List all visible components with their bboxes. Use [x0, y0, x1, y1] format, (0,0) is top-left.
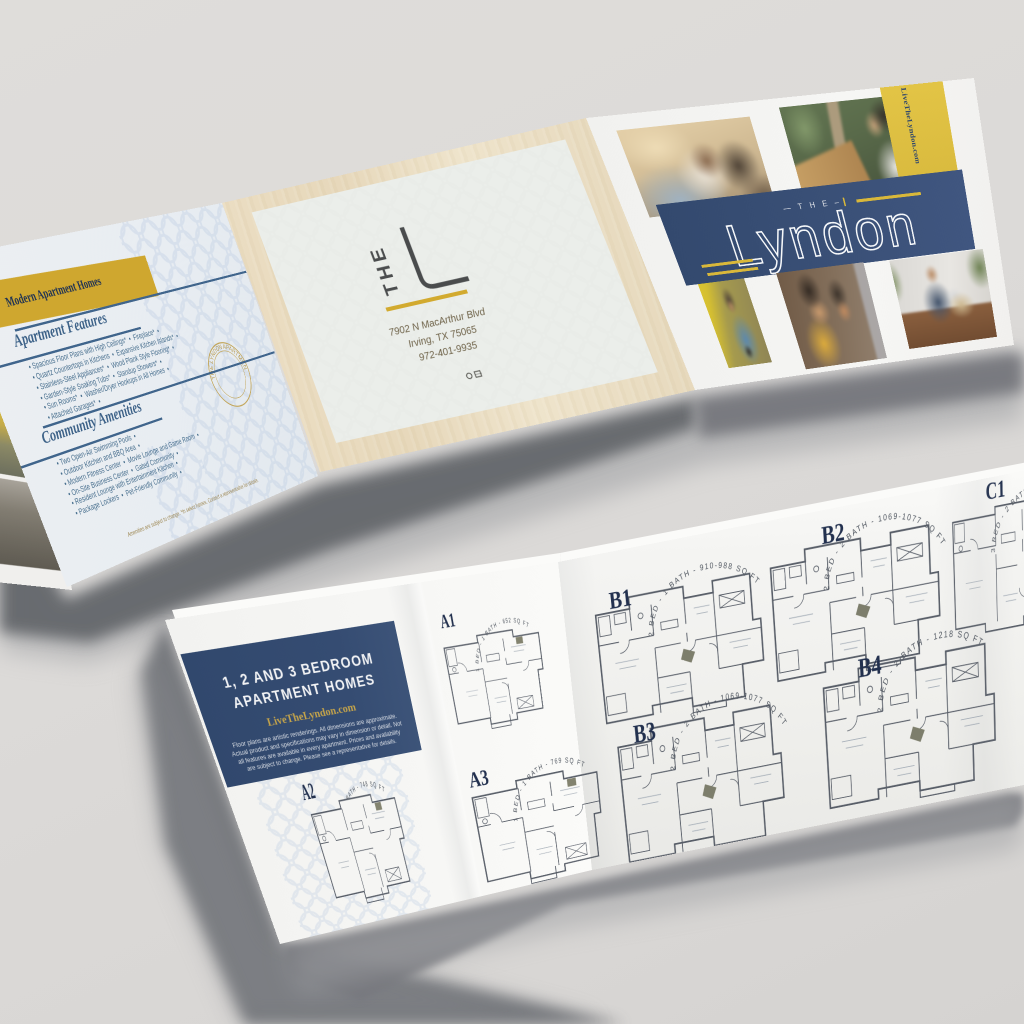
svg-text:B2: B2	[821, 519, 845, 551]
svg-text:B3: B3	[632, 715, 657, 749]
svg-text:A2: A2	[298, 777, 318, 804]
svg-text:A1: A1	[438, 609, 456, 633]
svg-text:B4: B4	[857, 648, 882, 683]
svg-text:B1: B1	[608, 584, 633, 615]
svg-text:A3: A3	[467, 765, 491, 793]
